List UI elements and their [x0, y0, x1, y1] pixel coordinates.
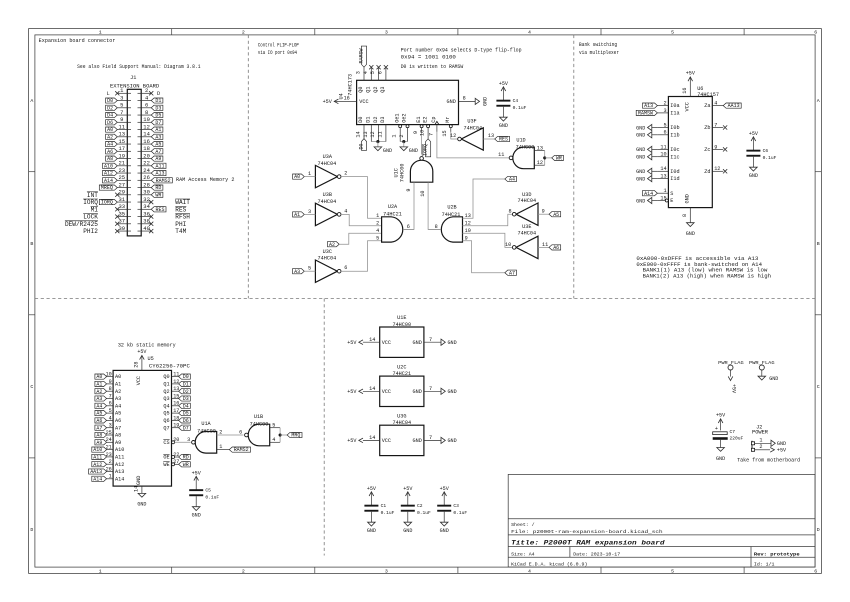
svg-text:GND: GND: [749, 173, 758, 179]
svg-text:25: 25: [118, 174, 125, 181]
svg-text:WR: WR: [183, 462, 189, 468]
svg-text:M1: M1: [91, 206, 99, 213]
svg-text:74HC00: 74HC00: [250, 421, 269, 427]
svg-text:GND: GND: [636, 133, 645, 139]
svg-text:A5: A5: [553, 212, 559, 218]
svg-text:6: 6: [814, 30, 817, 36]
svg-text:74HC00: 74HC00: [392, 322, 411, 328]
svg-text:A4: A4: [115, 403, 121, 409]
svg-text:GND: GND: [403, 528, 412, 534]
svg-text:WR: WR: [556, 156, 562, 162]
svg-text:A: A: [30, 98, 33, 104]
svg-text:AA13: AA13: [728, 103, 740, 109]
svg-text:+5V: +5V: [403, 486, 413, 492]
svg-text:2: 2: [242, 30, 245, 36]
svg-text:A4: A4: [96, 403, 102, 409]
svg-text:WE: WE: [163, 462, 169, 468]
svg-text:GND: GND: [448, 438, 457, 444]
svg-text:74HC21: 74HC21: [392, 371, 411, 377]
svg-text:VCC: VCC: [382, 340, 391, 346]
svg-text:31: 31: [118, 196, 125, 203]
svg-text:2: 2: [399, 134, 405, 137]
svg-text:GND: GND: [448, 389, 457, 395]
svg-text:B: B: [30, 241, 33, 247]
svg-text:74HC173: 74HC173: [347, 74, 353, 96]
svg-text:GND: GND: [686, 231, 695, 237]
svg-text:74HC21: 74HC21: [383, 211, 402, 217]
svg-text:+5V: +5V: [137, 349, 147, 355]
svg-text:7: 7: [428, 133, 434, 136]
svg-text:A7: A7: [509, 270, 515, 276]
svg-text:GND: GND: [136, 476, 142, 485]
svg-text:A5: A5: [155, 142, 161, 148]
svg-text:220uF: 220uF: [730, 436, 744, 442]
svg-text:WAIT: WAIT: [175, 199, 190, 206]
svg-text:A13: A13: [115, 469, 124, 475]
svg-text:RES: RES: [175, 206, 186, 213]
svg-text:A0: A0: [294, 174, 300, 180]
svg-text:+5V: +5V: [347, 340, 357, 346]
svg-text:18: 18: [143, 145, 150, 152]
svg-text:RD: RD: [183, 455, 189, 461]
svg-text:6: 6: [109, 401, 112, 407]
svg-text:A9: A9: [155, 156, 161, 162]
svg-text:RAMSW: RAMSW: [638, 111, 654, 117]
svg-text:74HC04: 74HC04: [463, 126, 482, 132]
svg-text:6: 6: [407, 224, 410, 230]
svg-text:27: 27: [118, 181, 125, 188]
svg-text:14: 14: [369, 435, 375, 441]
svg-text:Za: Za: [704, 103, 710, 109]
svg-text:GND: GND: [413, 438, 422, 444]
svg-text:A14: A14: [104, 178, 113, 184]
svg-text:A10: A10: [104, 163, 113, 169]
svg-text:35: 35: [118, 210, 125, 217]
svg-text:10: 10: [420, 191, 426, 197]
svg-text:A6: A6: [115, 418, 121, 424]
svg-text:RES: RES: [156, 207, 165, 213]
svg-text:7: 7: [429, 386, 432, 392]
svg-text:A8: A8: [115, 433, 121, 439]
svg-text:2: 2: [759, 444, 762, 450]
svg-text:GND: GND: [685, 194, 691, 203]
svg-text:Title: P2000T RAM expansion bo: Title: P2000T RAM expansion board: [511, 540, 666, 548]
svg-text:GND: GND: [769, 376, 778, 382]
svg-text:A5: A5: [96, 411, 102, 417]
svg-text:D0 is written to RAMSW: D0 is written to RAMSW: [401, 64, 464, 70]
svg-text:1: 1: [376, 213, 379, 219]
svg-text:D5: D5: [155, 113, 161, 119]
svg-text:A8: A8: [107, 156, 113, 162]
svg-text:Date: 2023-10-17: Date: 2023-10-17: [573, 552, 620, 558]
svg-text:+5V: +5V: [347, 389, 357, 395]
svg-text:A13: A13: [644, 103, 653, 109]
svg-text:U1B: U1B: [254, 414, 263, 420]
svg-text:E: E: [670, 198, 673, 204]
svg-text:74HC21: 74HC21: [442, 212, 461, 218]
svg-text:OE: OE: [163, 455, 169, 461]
svg-text:A1: A1: [115, 382, 121, 388]
svg-text:Q2: Q2: [163, 389, 169, 395]
svg-text:T4M: T4M: [175, 228, 186, 235]
svg-text:A4: A4: [107, 142, 113, 148]
svg-text:D3: D3: [380, 117, 386, 123]
svg-text:U3C: U3C: [323, 249, 332, 255]
svg-text:11: 11: [377, 131, 383, 137]
svg-text:+5V: +5V: [440, 486, 450, 492]
svg-text:74HC00: 74HC00: [197, 428, 216, 434]
svg-text:Q4: Q4: [163, 403, 169, 409]
svg-text:6: 6: [344, 265, 347, 271]
svg-text:10: 10: [143, 116, 150, 123]
svg-text:D3: D3: [183, 396, 189, 402]
svg-text:GND: GND: [636, 169, 645, 175]
svg-text:10: 10: [505, 242, 511, 248]
svg-text:GND: GND: [482, 97, 488, 106]
svg-text:2: 2: [376, 221, 379, 227]
svg-text:74HC04: 74HC04: [318, 256, 337, 262]
svg-text:1: 1: [759, 438, 762, 444]
svg-text:74HC04: 74HC04: [517, 198, 536, 204]
svg-text:11: 11: [498, 152, 504, 158]
svg-text:A11: A11: [93, 455, 102, 461]
svg-text:I1b: I1b: [670, 132, 679, 138]
svg-text:WR: WR: [155, 192, 161, 198]
svg-text:6: 6: [377, 71, 383, 74]
svg-text:3: 3: [109, 423, 112, 429]
svg-text:Q0: Q0: [358, 87, 364, 93]
svg-text:2: 2: [242, 568, 245, 574]
svg-text:Expansion board connector: Expansion board connector: [39, 38, 116, 44]
svg-text:7: 7: [429, 337, 432, 343]
svg-text:U5: U5: [148, 356, 154, 362]
svg-text:11: 11: [542, 242, 548, 248]
svg-text:I0c: I0c: [670, 147, 679, 153]
svg-text:7: 7: [429, 435, 432, 441]
svg-text:Take from motherboard: Take from motherboard: [737, 458, 800, 464]
svg-text:D2: D2: [373, 117, 379, 123]
svg-text:A10: A10: [115, 447, 124, 453]
svg-text:INT: INT: [87, 192, 98, 199]
svg-text:U1E: U1E: [397, 315, 406, 321]
svg-text:8: 8: [109, 386, 112, 392]
svg-text:A12: A12: [115, 462, 124, 468]
svg-text:C2: C2: [417, 503, 423, 509]
svg-text:8: 8: [508, 209, 511, 215]
svg-text:29: 29: [118, 189, 125, 196]
svg-text:+5V: +5V: [347, 438, 357, 444]
svg-text:GND: GND: [636, 176, 645, 182]
svg-text:5: 5: [370, 71, 376, 74]
svg-text:D7: D7: [155, 120, 161, 126]
svg-text:9: 9: [109, 379, 112, 385]
svg-text:C6: C6: [763, 148, 769, 154]
svg-text:I0b: I0b: [670, 125, 679, 131]
svg-text:2: 2: [109, 459, 112, 465]
svg-text:16: 16: [682, 88, 688, 94]
svg-text:Oe2: Oe2: [402, 113, 408, 122]
svg-text:4: 4: [528, 30, 531, 36]
svg-text:20: 20: [143, 152, 150, 159]
svg-text:5: 5: [671, 568, 674, 574]
svg-text:13: 13: [363, 131, 369, 137]
svg-text:14: 14: [369, 337, 375, 343]
svg-text:Zc: Zc: [704, 147, 710, 153]
svg-text:VCC: VCC: [382, 438, 391, 444]
svg-text:7: 7: [120, 109, 123, 116]
svg-text:BANK1(2) A13 (high) when RAMSW: BANK1(2) A13 (high) when RAMSW is high: [643, 273, 771, 279]
svg-text:D: D: [157, 91, 160, 97]
svg-text:9: 9: [406, 189, 412, 192]
svg-text:PHI2: PHI2: [83, 228, 98, 235]
svg-text:Zd: Zd: [704, 169, 710, 175]
svg-text:A3: A3: [294, 269, 300, 275]
svg-text:A2: A2: [329, 242, 335, 248]
svg-text:J1: J1: [130, 75, 136, 81]
svg-text:14: 14: [143, 131, 150, 138]
svg-text:0.1uF: 0.1uF: [381, 510, 395, 516]
svg-text:PHI: PHI: [175, 221, 186, 228]
svg-text:U1D: U1D: [516, 137, 525, 143]
svg-text:1: 1: [109, 474, 112, 480]
svg-text:22: 22: [143, 160, 150, 167]
svg-text:3: 3: [356, 71, 362, 74]
svg-text:+5V: +5V: [749, 131, 759, 137]
svg-text:4: 4: [363, 71, 369, 74]
svg-text:12: 12: [370, 131, 376, 137]
svg-text:5: 5: [109, 408, 112, 414]
svg-text:U2A: U2A: [388, 204, 398, 210]
svg-text:16: 16: [143, 138, 150, 145]
svg-text:2: 2: [219, 430, 222, 436]
svg-text:GND: GND: [636, 155, 645, 161]
svg-text:GND: GND: [383, 148, 392, 154]
svg-text:A12: A12: [104, 171, 113, 177]
svg-text:I1d: I1d: [670, 176, 679, 182]
svg-text:D4: D4: [183, 403, 189, 409]
svg-text:U3F: U3F: [467, 118, 476, 124]
svg-text:U1C: U1C: [393, 168, 399, 177]
svg-text:1: 1: [99, 30, 102, 36]
svg-text:14: 14: [369, 386, 375, 392]
svg-text:A2: A2: [115, 389, 121, 395]
svg-text:D1: D1: [155, 98, 161, 104]
svg-text:D2: D2: [183, 389, 189, 395]
svg-text:A3: A3: [115, 396, 121, 402]
svg-text:74HC00: 74HC00: [400, 164, 406, 183]
svg-text:30: 30: [143, 189, 150, 196]
svg-text:LOCK: LOCK: [83, 214, 98, 221]
svg-text:Q1: Q1: [163, 382, 169, 388]
svg-text:6: 6: [239, 430, 242, 436]
svg-text:D4: D4: [107, 113, 113, 119]
svg-text:C: C: [30, 384, 33, 390]
svg-text:I1c: I1c: [670, 154, 679, 160]
svg-text:8: 8: [463, 96, 466, 102]
svg-text:1: 1: [392, 134, 398, 137]
svg-text:See also Field Support Manual:: See also Field Support Manual: Diagram 3…: [77, 64, 201, 70]
svg-text:+5V: +5V: [716, 412, 726, 418]
svg-text:A10: A10: [93, 447, 102, 453]
svg-text:A1: A1: [155, 127, 161, 133]
svg-text:VCC: VCC: [359, 99, 368, 105]
svg-text:5: 5: [376, 236, 379, 242]
svg-text:A6: A6: [553, 245, 559, 251]
svg-text:33: 33: [118, 203, 125, 210]
svg-text:E1: E1: [416, 117, 422, 123]
svg-text:Q2: Q2: [373, 87, 379, 93]
svg-text:Q7: Q7: [163, 425, 169, 431]
svg-text:C: C: [817, 384, 820, 390]
svg-text:C1: C1: [381, 503, 387, 509]
svg-text:MRQ: MRQ: [291, 433, 300, 439]
svg-text:A1: A1: [294, 212, 300, 218]
svg-text:A0: A0: [115, 374, 121, 380]
svg-text:D6: D6: [107, 120, 113, 126]
svg-text:A7: A7: [115, 425, 121, 431]
svg-text:32: 32: [143, 196, 150, 203]
svg-text:A0: A0: [107, 127, 113, 133]
svg-text:D6: D6: [183, 418, 189, 424]
svg-text:Bank switching: Bank switching: [579, 42, 617, 48]
svg-text:Q3: Q3: [163, 396, 169, 402]
svg-text:74HC04: 74HC04: [517, 231, 536, 237]
svg-text:Q3: Q3: [380, 87, 386, 93]
svg-text:A2: A2: [107, 134, 113, 140]
svg-text:VCC: VCC: [685, 102, 691, 111]
svg-text:GND: GND: [192, 513, 201, 519]
svg-text:EXTENSION BOARD: EXTENSION BOARD: [110, 84, 159, 90]
svg-text:4: 4: [344, 208, 347, 214]
svg-text:3: 3: [187, 437, 190, 443]
svg-text:21: 21: [118, 160, 125, 167]
svg-text:CS: CS: [163, 440, 169, 446]
svg-text:GND: GND: [137, 501, 146, 507]
svg-text:0.1uF: 0.1uF: [513, 105, 527, 111]
svg-text:Q0: Q0: [163, 374, 169, 380]
svg-text:+: +: [715, 426, 718, 432]
svg-text:15: 15: [442, 130, 448, 136]
svg-text:D0: D0: [107, 98, 113, 104]
svg-text:A: A: [817, 98, 820, 104]
svg-text:AA13: AA13: [90, 469, 102, 475]
svg-text:3: 3: [385, 30, 388, 36]
svg-text:10: 10: [420, 130, 426, 136]
svg-text:12: 12: [450, 133, 456, 139]
svg-text:E2: E2: [422, 117, 428, 123]
svg-text:A14: A14: [644, 191, 653, 197]
svg-text:7: 7: [109, 393, 112, 399]
svg-text:9: 9: [120, 116, 123, 123]
svg-text:4: 4: [376, 228, 379, 234]
svg-text:5: 5: [308, 266, 311, 272]
svg-text:A7: A7: [96, 425, 102, 431]
svg-text:Q1: Q1: [366, 87, 372, 93]
svg-text:Control FLIP-FLOP: Control FLIP-FLOP: [258, 42, 299, 48]
svg-text:1: 1: [308, 171, 311, 177]
svg-text:24: 24: [143, 167, 150, 174]
svg-text:38: 38: [143, 218, 150, 225]
svg-text:IORQ: IORQ: [101, 200, 113, 206]
svg-text:C4: C4: [513, 98, 519, 104]
svg-text:1: 1: [219, 444, 222, 450]
svg-text:0x94 = 1001 0100: 0x94 = 1001 0100: [401, 54, 456, 60]
svg-text:+5V: +5V: [192, 471, 202, 477]
svg-text:GND: GND: [440, 528, 449, 534]
svg-text:A4: A4: [509, 177, 515, 183]
svg-text:D1: D1: [366, 117, 372, 123]
svg-text:File: p2000t-ram-expansion-boa: File: p2000t-ram-expansion-board.kicad_s…: [511, 529, 663, 535]
svg-text:RD: RD: [155, 185, 161, 191]
svg-text:via multiplexer: via multiplexer: [579, 50, 619, 56]
svg-text:U3D: U3D: [522, 192, 531, 198]
svg-text:9: 9: [542, 209, 545, 215]
svg-text:A6: A6: [107, 149, 113, 155]
svg-text:+5V: +5V: [367, 486, 377, 492]
svg-text:A7: A7: [155, 149, 161, 155]
svg-text:4: 4: [109, 415, 112, 421]
svg-text:A2: A2: [96, 389, 102, 395]
svg-text:17: 17: [118, 145, 125, 152]
svg-text:CY62256-70PC: CY62256-70PC: [149, 364, 190, 370]
svg-text:A14: A14: [93, 476, 102, 482]
svg-text:A14: A14: [115, 476, 124, 482]
svg-text:36: 36: [143, 210, 150, 217]
svg-text:GND: GND: [636, 147, 645, 153]
svg-text:6: 6: [814, 568, 817, 574]
svg-text:8: 8: [435, 224, 438, 230]
svg-text:16: 16: [344, 96, 350, 102]
svg-text:D7: D7: [183, 425, 189, 431]
svg-text:U2C: U2C: [397, 364, 406, 370]
svg-text:0.1uF: 0.1uF: [453, 510, 467, 516]
svg-text:4: 4: [528, 568, 531, 574]
svg-text:Id: 1/1: Id: 1/1: [754, 562, 775, 568]
svg-text:D3: D3: [155, 105, 161, 111]
svg-text:3: 3: [308, 209, 311, 215]
svg-text:14: 14: [133, 486, 139, 492]
svg-text:26: 26: [143, 174, 150, 181]
svg-text:11: 11: [118, 123, 125, 130]
svg-text:A1: A1: [96, 382, 102, 388]
svg-text:3: 3: [120, 94, 123, 101]
svg-text:Zb: Zb: [704, 125, 710, 131]
svg-text:POWER: POWER: [752, 429, 768, 435]
svg-text:1: 1: [99, 568, 102, 574]
svg-text:GND: GND: [413, 389, 422, 395]
svg-text:I1a: I1a: [670, 111, 679, 117]
svg-text:A9: A9: [115, 440, 121, 446]
svg-text:+5V: +5V: [777, 447, 787, 453]
svg-text:L: L: [107, 91, 110, 97]
svg-text:U2B: U2B: [447, 204, 456, 210]
svg-text:A5: A5: [115, 411, 121, 417]
svg-text:19: 19: [118, 152, 125, 159]
svg-text:MREQ: MREQ: [101, 185, 113, 191]
svg-text:15: 15: [118, 138, 125, 145]
svg-text:D5: D5: [183, 411, 189, 417]
svg-text:74HC04: 74HC04: [318, 199, 337, 205]
svg-text:GND: GND: [716, 456, 725, 462]
svg-text:A0: A0: [96, 374, 102, 380]
svg-text:A13: A13: [156, 171, 165, 177]
svg-text:VCC: VCC: [382, 389, 391, 395]
svg-text:A6: A6: [96, 418, 102, 424]
svg-text:GND: GND: [499, 123, 508, 129]
svg-text:A8: A8: [96, 433, 102, 439]
svg-text:B: B: [817, 241, 820, 247]
svg-text:12: 12: [143, 123, 150, 130]
